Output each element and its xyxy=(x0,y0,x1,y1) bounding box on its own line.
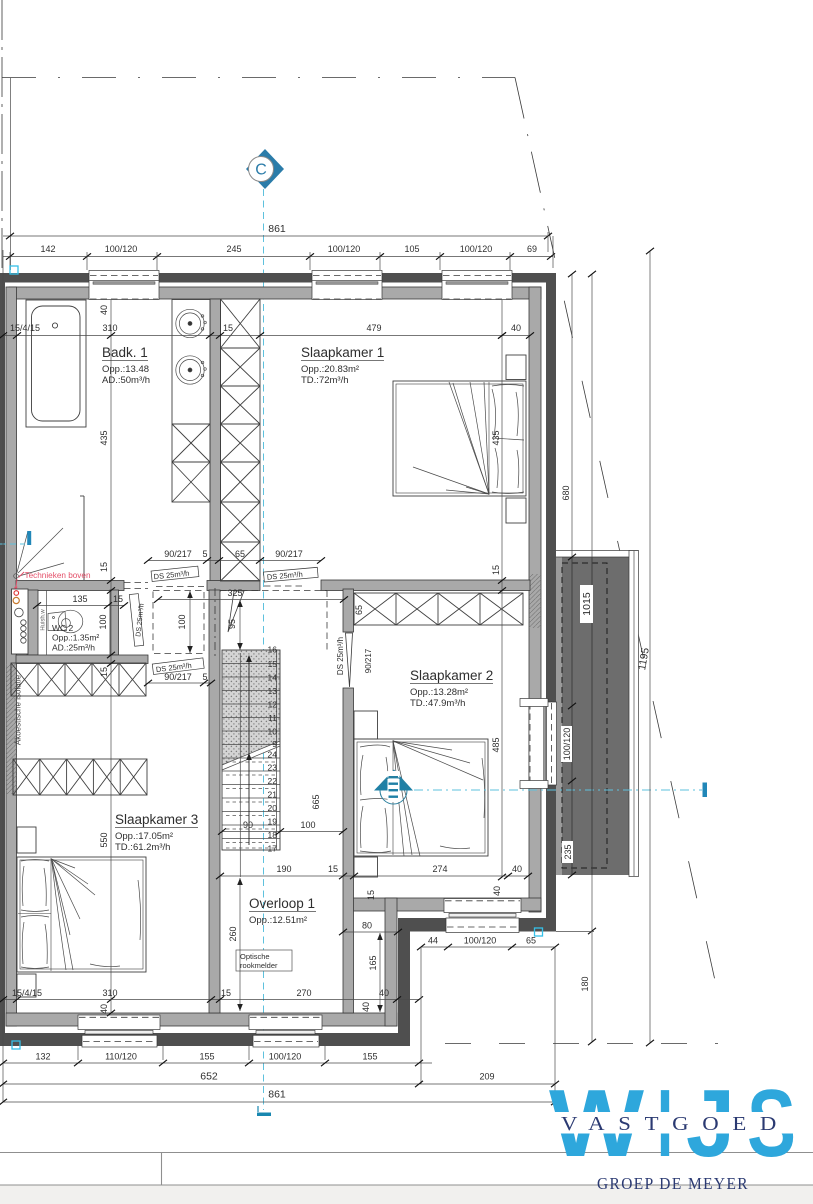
svg-text:100: 100 xyxy=(98,614,108,629)
svg-text:Slaapkamer 2: Slaapkamer 2 xyxy=(410,668,493,683)
svg-text:Opp.:1.35m²: Opp.:1.35m² xyxy=(52,633,99,643)
svg-text:100/120: 100/120 xyxy=(328,244,361,254)
svg-text:142: 142 xyxy=(40,244,55,254)
svg-text:65: 65 xyxy=(526,936,536,946)
svg-text:Badk. 1: Badk. 1 xyxy=(102,345,148,360)
svg-text:65: 65 xyxy=(354,605,364,615)
svg-text:100/120: 100/120 xyxy=(269,1052,302,1062)
svg-text:Opp.:17.05m²: Opp.:17.05m² xyxy=(115,831,173,842)
svg-text:310: 310 xyxy=(102,323,117,333)
svg-text:90/217: 90/217 xyxy=(164,672,192,682)
svg-text:100/120: 100/120 xyxy=(464,936,497,946)
svg-text:165: 165 xyxy=(368,955,378,970)
svg-text:90: 90 xyxy=(243,820,253,830)
svg-text:861: 861 xyxy=(268,1089,286,1101)
svg-text:AD.:50m³/h: AD.:50m³/h xyxy=(102,375,150,386)
svg-text:135: 135 xyxy=(72,594,87,604)
svg-text:1015: 1015 xyxy=(581,592,593,616)
svg-text:Opp.:20.83m²: Opp.:20.83m² xyxy=(301,364,359,375)
svg-text:AD.:25m³/h: AD.:25m³/h xyxy=(52,643,95,653)
svg-text:WC 2: WC 2 xyxy=(52,623,74,633)
svg-text:190: 190 xyxy=(276,864,291,874)
svg-text:5: 5 xyxy=(202,549,207,559)
svg-text:15: 15 xyxy=(268,659,278,669)
svg-text:19: 19 xyxy=(268,817,278,827)
svg-text:Opp.:13.28m²: Opp.:13.28m² xyxy=(410,687,468,698)
svg-text:Overloop 1: Overloop 1 xyxy=(249,896,315,911)
svg-text:15: 15 xyxy=(113,594,123,604)
svg-text:69: 69 xyxy=(527,244,537,254)
svg-text:Akoestische isolatie: Akoestische isolatie xyxy=(14,674,23,745)
svg-text:21: 21 xyxy=(268,790,278,800)
svg-text:235: 235 xyxy=(563,844,573,859)
svg-text:14: 14 xyxy=(268,673,278,683)
svg-text:100/120: 100/120 xyxy=(460,244,493,254)
svg-text:155: 155 xyxy=(362,1052,377,1062)
svg-text:TD.:47.9m³/h: TD.:47.9m³/h xyxy=(410,698,465,709)
svg-text:Opp.:12.51m²: Opp.:12.51m² xyxy=(249,915,307,926)
svg-text:TD.:72m³/h: TD.:72m³/h xyxy=(301,375,349,386)
svg-text:325: 325 xyxy=(227,588,242,598)
svg-text:95: 95 xyxy=(227,619,237,629)
svg-text:485: 485 xyxy=(491,737,501,752)
svg-text:15/4/15: 15/4/15 xyxy=(12,988,42,998)
svg-text:DS 25m³/h: DS 25m³/h xyxy=(336,637,345,675)
svg-text:16: 16 xyxy=(268,645,278,655)
svg-text:Slaapkamer 3: Slaapkamer 3 xyxy=(115,812,198,827)
svg-text:24: 24 xyxy=(268,750,278,760)
svg-text:665: 665 xyxy=(311,794,321,809)
svg-text:Slaapkamer 1: Slaapkamer 1 xyxy=(301,345,384,360)
svg-text:40: 40 xyxy=(511,323,521,333)
svg-text:90/217: 90/217 xyxy=(364,648,373,673)
svg-text:15: 15 xyxy=(491,565,501,575)
svg-text:15: 15 xyxy=(366,890,376,900)
svg-text:100: 100 xyxy=(177,614,187,629)
svg-text:Huish.w: Huish.w xyxy=(41,609,47,631)
svg-text:90/217: 90/217 xyxy=(164,549,192,559)
svg-text:680: 680 xyxy=(561,485,571,500)
svg-text:15: 15 xyxy=(328,864,338,874)
svg-text:100: 100 xyxy=(300,820,315,830)
svg-text:100/120: 100/120 xyxy=(562,728,572,761)
svg-text:9: 9 xyxy=(272,739,277,749)
svg-text:100/120: 100/120 xyxy=(105,244,138,254)
svg-text:40: 40 xyxy=(492,886,502,896)
svg-text:861: 861 xyxy=(268,223,286,235)
svg-text:435: 435 xyxy=(491,430,501,445)
svg-text:40: 40 xyxy=(99,1004,109,1014)
svg-text:Optische: Optische xyxy=(240,952,270,961)
svg-text:15/4/15: 15/4/15 xyxy=(10,323,40,333)
svg-text:180: 180 xyxy=(580,976,590,991)
svg-text:40: 40 xyxy=(361,1002,371,1012)
svg-text:479: 479 xyxy=(366,323,381,333)
svg-text:105: 105 xyxy=(404,244,419,254)
svg-text:652: 652 xyxy=(200,1071,218,1083)
svg-text:40: 40 xyxy=(99,305,109,315)
svg-text:GROEP DE MEYER: GROEP DE MEYER xyxy=(597,1174,749,1193)
svg-text:VASTGOED: VASTGOED xyxy=(561,1113,790,1135)
svg-text:Opp.:13.48: Opp.:13.48 xyxy=(102,364,149,375)
svg-text:260: 260 xyxy=(228,926,238,941)
svg-text:TD.:61.2m³/h: TD.:61.2m³/h xyxy=(115,842,170,853)
svg-text:rookmelder: rookmelder xyxy=(240,961,278,970)
svg-text:90/217: 90/217 xyxy=(275,549,303,559)
svg-text:245: 245 xyxy=(226,244,241,254)
svg-text:310: 310 xyxy=(102,988,117,998)
svg-text:C: C xyxy=(255,162,267,179)
svg-text:155: 155 xyxy=(199,1052,214,1062)
svg-text:10: 10 xyxy=(268,727,278,737)
svg-text:15: 15 xyxy=(99,667,109,677)
svg-text:13: 13 xyxy=(268,686,278,696)
svg-text:20: 20 xyxy=(268,803,278,813)
svg-text:40: 40 xyxy=(512,864,522,874)
svg-text:17: 17 xyxy=(268,844,278,854)
svg-text:435: 435 xyxy=(99,430,109,445)
svg-text:274: 274 xyxy=(432,864,447,874)
svg-text:12: 12 xyxy=(268,700,278,710)
svg-text:209: 209 xyxy=(479,1072,494,1082)
svg-text:270: 270 xyxy=(296,988,311,998)
svg-text:550: 550 xyxy=(99,832,109,847)
svg-text:23: 23 xyxy=(268,763,278,773)
svg-text:132: 132 xyxy=(35,1052,50,1062)
svg-text:15: 15 xyxy=(99,562,109,572)
svg-text:15: 15 xyxy=(221,988,231,998)
svg-text:65: 65 xyxy=(235,549,245,559)
svg-text:44: 44 xyxy=(428,936,438,946)
svg-text:110/120: 110/120 xyxy=(105,1052,137,1062)
svg-text:22: 22 xyxy=(268,776,278,786)
svg-text:15: 15 xyxy=(223,323,233,333)
svg-text:11: 11 xyxy=(268,713,277,723)
svg-text:80: 80 xyxy=(362,921,372,931)
svg-text:Technieken boven: Technieken boven xyxy=(25,571,91,580)
svg-text:40: 40 xyxy=(379,988,389,998)
